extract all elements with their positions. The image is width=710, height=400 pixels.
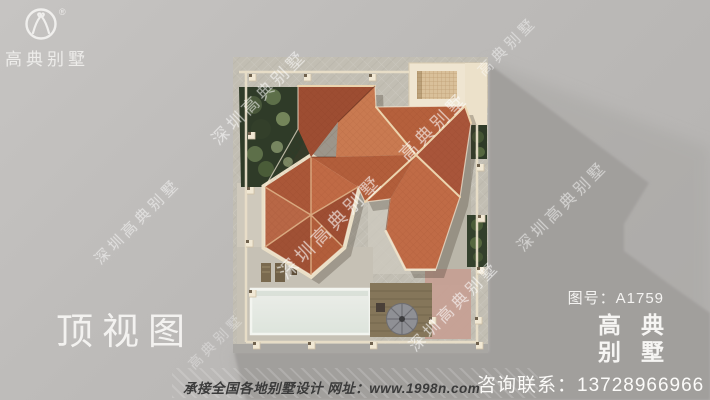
brand-logo-icon [23, 6, 59, 42]
footer-contact-phone: 咨询联系：13728966966 [477, 370, 704, 397]
brand-logo: ® 高典别墅 [0, 4, 120, 66]
parasol [387, 304, 418, 335]
registered-trademark-symbol: ® [59, 7, 66, 17]
brand-name-line2: 别 墅 [598, 333, 670, 367]
footer-services-text: 承接全国各地别墅设计 网址：www.1998n.com [183, 377, 480, 397]
brand-logo-text: 高典别墅 [5, 45, 89, 70]
swimming-pool [251, 289, 370, 334]
villa-aerial-photo [233, 57, 488, 353]
drawing-number: 图号：A1759 [568, 287, 664, 308]
view-title: 顶视图 [56, 301, 194, 355]
